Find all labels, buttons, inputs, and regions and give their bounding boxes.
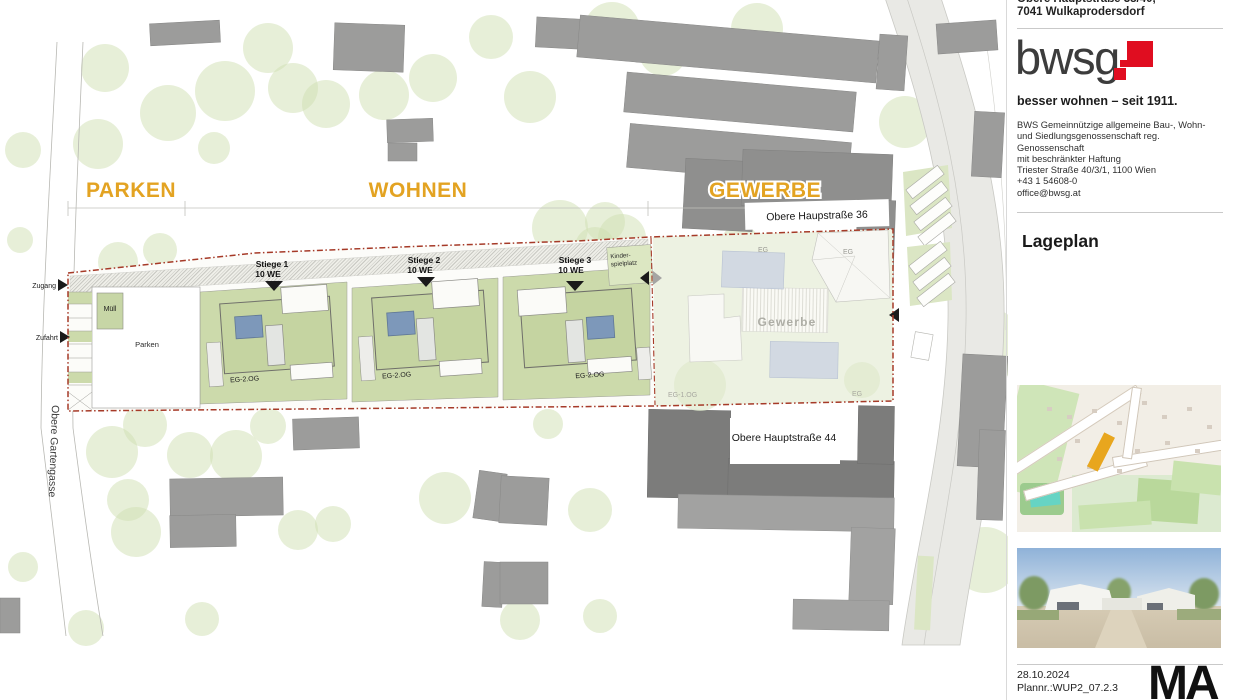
company-line: mit beschränkter Haftung — [1017, 154, 1227, 165]
zone-label-gewerbe: GEWERBE — [709, 179, 821, 202]
floor-label-eg-top-right: EG — [843, 249, 853, 256]
stiege1-name: Stiege 1 — [256, 259, 289, 269]
map-field — [1078, 501, 1151, 530]
photo-grass — [1177, 609, 1221, 620]
stiege3-name: Stiege 3 — [559, 255, 592, 265]
solar-panel — [586, 316, 614, 340]
location-map-thumbnail — [1017, 385, 1221, 532]
company-info: BWS Gemeinnützige allgemeine Bau-, Wohn-… — [1017, 120, 1227, 199]
stiege2-units: 10 WE — [407, 265, 433, 275]
playground-label-line1: Kinder- — [610, 252, 631, 260]
site-plan-area: PARKEN WOHNEN GEWERBE Kinder- spielplatz — [0, 0, 1008, 700]
floor-label-eg-top-left: EG — [758, 247, 768, 254]
company-line: +43 1 54608-0 — [1017, 176, 1227, 187]
plan-date: 28.10.2024 — [1017, 669, 1070, 681]
stiege3-units: 10 WE — [558, 265, 584, 275]
plan-sheet: PARKEN WOHNEN GEWERBE Kinder- spielplatz — [0, 0, 1236, 700]
floor-label-eg-bottom: EG — [852, 391, 862, 398]
separator — [1017, 28, 1223, 29]
photo-windows — [1147, 603, 1163, 610]
solar-panel — [235, 315, 263, 339]
photo-building-center — [1102, 598, 1142, 610]
corner-mark: MA — [1148, 656, 1217, 700]
floor-label-eg-1og: EG-1.OG — [668, 392, 697, 399]
stiege2-name: Stiege 2 — [408, 255, 441, 265]
solar-panel — [387, 311, 416, 336]
stairwell — [416, 318, 436, 361]
bwsg-logo: bwsg — [1015, 30, 1119, 85]
company-line: Genossenschaft — [1017, 143, 1227, 154]
zufahrt-label: Zufahrt — [36, 335, 58, 342]
photo-windows — [1057, 602, 1079, 610]
gartengasse-label: Obere Gartengasse — [46, 405, 61, 498]
gewerbe-area-label: Gewerbe — [757, 315, 816, 329]
map-buildings — [1047, 407, 1052, 411]
zone-label-wohnen: WOHNEN — [369, 179, 468, 202]
company-line: BWS Gemeinnützige allgemeine Bau-, Wohn- — [1017, 120, 1227, 131]
company-line: Triester Straße 40/3/1, 1100 Wien — [1017, 165, 1227, 176]
map-field — [1171, 460, 1221, 495]
logo-square-small — [1120, 60, 1127, 67]
logo-square-large — [1127, 41, 1153, 67]
site-plan-drawing: PARKEN WOHNEN GEWERBE Kinder- spielplatz — [0, 0, 1008, 700]
muell-label: Müll — [104, 306, 117, 313]
company-line: office@bwsg.at — [1017, 188, 1227, 199]
logo-square-medium — [1114, 68, 1126, 80]
zone-label-parken: PARKEN — [86, 179, 176, 202]
photo-tree — [1019, 576, 1049, 610]
zugang-label: Zugang — [32, 283, 56, 290]
strasse44-label: Obere Hauptstraße 44 — [732, 432, 837, 444]
address-line2: 7041 Wulkaprodersdorf — [1017, 6, 1156, 19]
parken-area-label: Parken — [135, 340, 159, 349]
sheet-divider — [1006, 0, 1007, 700]
plan-number: Plannr.:WUP2_07.2.3 — [1017, 682, 1118, 694]
project-address: Obere Hauptstraße 38/40, 7041 Wulkaprode… — [1017, 0, 1156, 19]
stairwell — [565, 320, 585, 363]
photo-grass — [1017, 610, 1059, 620]
stairwell — [265, 325, 285, 366]
sheet-title: Lageplan — [1022, 231, 1099, 252]
separator — [1017, 212, 1223, 213]
logo-tagline: besser wohnen – seit 1911. — [1017, 94, 1178, 108]
photo-path — [1095, 610, 1147, 648]
title-block-sidebar: Obere Hauptstraße 38/40, 7041 Wulkaprode… — [1008, 0, 1236, 700]
photo-building-right — [1137, 588, 1195, 610]
stiege1-units: 10 WE — [255, 269, 281, 279]
company-line: und Siedlungsgenossenschaft reg. — [1017, 131, 1227, 142]
rendering-thumbnail — [1017, 548, 1221, 648]
